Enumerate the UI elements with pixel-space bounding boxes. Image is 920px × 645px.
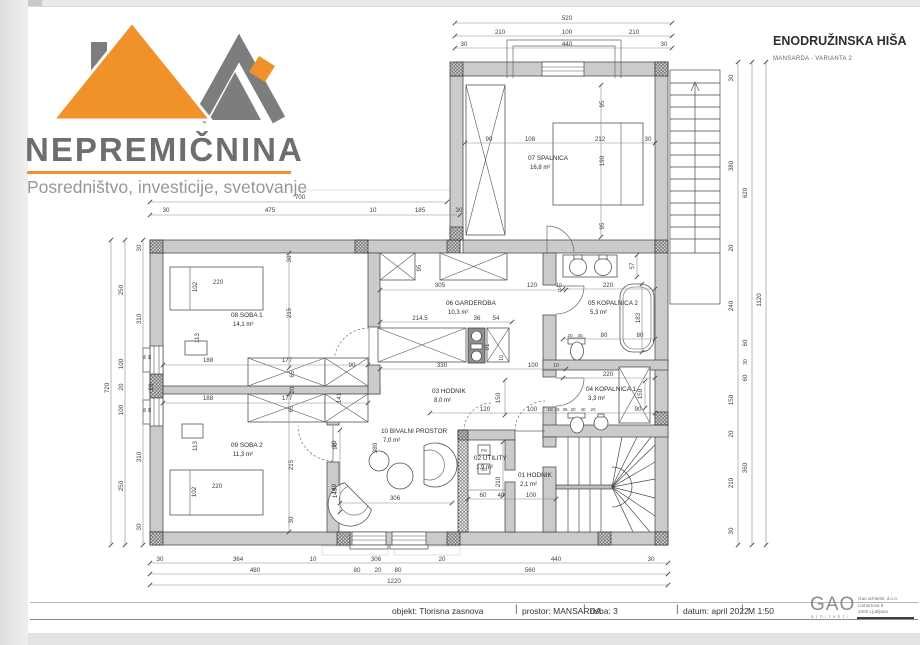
dim-label: 54	[493, 315, 500, 322]
dim-label: 214.5	[412, 315, 428, 322]
dim-label: 380	[728, 160, 735, 171]
dim-label: 360	[742, 462, 749, 473]
room-area: 11,3 m²	[233, 452, 253, 458]
room-name: 10 BIVALNI PROSTOR	[381, 428, 448, 435]
dim-label: 149	[331, 483, 338, 494]
titleblock-risba: risba: 3	[590, 606, 618, 616]
room-name: 02 UTILITY	[474, 455, 507, 462]
dim-label: 10	[499, 355, 505, 361]
dim-label: 30	[648, 556, 655, 563]
dim-label: 30	[645, 136, 652, 143]
dim-label: 30	[661, 41, 668, 48]
dim-label: 10	[557, 287, 562, 293]
dim-label: 150	[495, 392, 502, 403]
architect-logo-sub: arhitekti	[811, 614, 850, 619]
dim-label: 212	[595, 136, 606, 143]
dim-label: 30	[728, 74, 735, 81]
room-name: 07 SPALNICA	[528, 155, 569, 162]
external-stairs	[670, 70, 720, 304]
dim-label: 20	[375, 567, 382, 574]
dim-label: 475	[265, 207, 276, 214]
bathroom2-fixtures	[563, 255, 654, 360]
dim-label: 30	[163, 207, 170, 214]
dim-label: 95	[599, 222, 606, 229]
dim-label: 30	[743, 359, 749, 365]
dim-label: 60	[480, 492, 487, 499]
dim-label: PS	[481, 448, 487, 453]
dim-label: 102	[191, 486, 198, 497]
dim-label: 90	[331, 440, 338, 447]
washbasin-2	[595, 259, 612, 276]
dim-label: 120	[527, 282, 538, 289]
dim-label: 177	[282, 395, 293, 402]
internal-stairs	[556, 437, 655, 532]
dim-label: 305	[435, 282, 446, 289]
dim-label: 100	[526, 492, 537, 499]
utility-partition	[458, 430, 468, 532]
dim-label: 700	[295, 194, 306, 201]
room-area: 3,3 m²	[588, 396, 605, 402]
dim-label: 60	[742, 339, 749, 346]
dim-label: 81	[484, 343, 491, 350]
dim-label: 20	[728, 430, 735, 437]
titleblock-separator: |	[741, 604, 744, 615]
dim-label: 20	[567, 333, 573, 339]
dim-label: 113	[194, 333, 201, 343]
room-area: 10,3 m²	[448, 310, 468, 316]
dim-label: 40	[580, 407, 586, 412]
dim-label: 100	[118, 404, 125, 415]
dim-label: 520	[562, 15, 573, 22]
dim-label: 36	[474, 315, 481, 322]
architect-logo: GAO	[810, 594, 855, 616]
dim-label: 100	[118, 358, 125, 369]
dim-label: 100	[562, 29, 573, 36]
dim-label: 90	[349, 362, 356, 369]
dim-label: 20	[148, 383, 155, 390]
dim-label: 30	[286, 255, 293, 262]
dim-label: 10	[370, 207, 377, 214]
dim-label: 95	[599, 100, 606, 107]
furniture-layer	[170, 85, 654, 535]
washbasin-1	[570, 259, 587, 276]
dim-label: 1120	[756, 293, 763, 307]
dim-label: 185	[415, 207, 426, 214]
architect-address-line: 1000 Ljubljana	[858, 609, 898, 616]
dim-label: 85	[147, 407, 152, 412]
dim-label: 108	[525, 136, 536, 143]
architect-address-line: Gao arhitekti, d.o.o.	[858, 596, 898, 603]
room-name: 06 GARDEROBA	[446, 300, 496, 307]
titleblock-separator: |	[583, 604, 586, 615]
dim-label: 480	[250, 567, 261, 574]
appliance-column	[468, 328, 485, 363]
dim-label: 20	[570, 407, 576, 412]
stair-handrail	[556, 485, 612, 489]
dim-label: 210	[495, 29, 506, 36]
bed-soba2	[170, 470, 263, 515]
armchair-1	[424, 443, 457, 487]
dim-label: 60	[742, 374, 749, 381]
dim-label: 306	[371, 556, 382, 563]
dim-label: 40	[498, 492, 505, 499]
dim-label: 440	[551, 556, 562, 563]
dim-label: 10	[553, 363, 559, 369]
room-name: 09 SOBA 2	[231, 442, 263, 449]
dim-label: 364	[233, 556, 244, 563]
titleblock-separator: |	[515, 604, 518, 615]
dim-label: 215	[286, 307, 293, 318]
titleblock-bottom-rule	[30, 619, 918, 620]
dim-label: 102	[192, 281, 199, 292]
coffee-table-2	[387, 463, 413, 489]
dim-label: 188	[203, 357, 214, 364]
dim-label: 20	[118, 383, 125, 390]
dim-label: 20	[439, 556, 446, 563]
dim-label: 250	[118, 284, 125, 295]
room-name: 04 KOPALNICA 1	[586, 386, 636, 393]
dim-label: 380	[372, 442, 379, 453]
dim-label: 183	[635, 312, 642, 323]
bed-soba1	[170, 267, 263, 310]
washbasin-3	[594, 416, 608, 430]
room-area: 7,0 m²	[383, 438, 400, 444]
room-name: 03 HODNIK	[432, 388, 466, 395]
dim-label: 65	[288, 405, 295, 412]
dim-label: 80	[354, 567, 361, 574]
dim-label: 220	[603, 282, 614, 289]
dim-label: 90	[486, 136, 493, 143]
dim-label: 80	[637, 332, 644, 339]
dim-label: 560	[525, 567, 536, 574]
dim-label: 30	[728, 527, 735, 534]
room-area: 5,3 m²	[590, 310, 607, 316]
dim-label: 35	[562, 407, 568, 412]
dim-label: 250	[118, 480, 125, 491]
dim-label: 150	[637, 388, 644, 399]
toilet-1	[571, 417, 584, 433]
dim-label: 20	[590, 407, 596, 412]
titleblock-scale: M 1:50	[748, 606, 774, 616]
dim-label: 40	[577, 333, 583, 339]
dim-label: 1220	[387, 578, 401, 585]
dim-label: 120	[480, 406, 491, 413]
dim-label: 20	[728, 244, 735, 251]
dim-label: 210	[495, 476, 502, 487]
titleblock-objekt: objekt: Tlorisna zasnova	[392, 606, 484, 616]
dim-label: 220	[212, 483, 223, 490]
room-name: 05 KOPALNICA 2	[588, 300, 638, 307]
dim-label: 150	[728, 394, 735, 405]
architect-address: Gao arhitekti, d.o.o. Linhartova 8 1000 …	[858, 596, 898, 616]
dim-label: 220	[603, 371, 614, 378]
dim-label: 215	[288, 459, 295, 470]
dim-label: 113	[192, 441, 199, 451]
dim-label: 100	[528, 362, 539, 369]
room-area: 2,1 m²	[520, 482, 537, 488]
dim-label: 310	[136, 451, 143, 462]
toilet-2	[571, 342, 584, 360]
room-area: 1,9 m²	[476, 465, 493, 471]
dim-label: 85	[147, 354, 152, 359]
dim-label: 210	[728, 477, 735, 488]
dim-label: 220	[213, 279, 224, 286]
nightstand-soba2	[182, 424, 203, 438]
room-name: 01 HODNIK	[518, 472, 552, 479]
dim-label: 10	[310, 556, 317, 563]
room-area: 8,0 m²	[434, 398, 451, 404]
floor-plan: 5202101002103044030700304751018530901082…	[0, 0, 920, 645]
room-area: 14,1 m²	[233, 322, 253, 328]
dim-label: 141	[336, 392, 343, 403]
dim-label: 177	[282, 357, 293, 364]
dim-label: 30	[461, 41, 468, 48]
dim-label: 190	[599, 155, 606, 166]
dim-label: 15	[554, 407, 560, 412]
dim-label: 310	[136, 313, 143, 324]
dim-label: 10	[547, 407, 553, 412]
titleblock-top-rule	[30, 602, 918, 603]
dim-label: 30	[136, 523, 143, 530]
dim-label: 306	[390, 495, 401, 502]
dim-label: 30	[136, 244, 143, 251]
dim-label: 90	[635, 406, 642, 413]
dim-label: 330	[437, 362, 448, 369]
architect-logo-rule	[857, 617, 914, 619]
dim-label: 30	[456, 207, 463, 214]
dim-label: 95	[416, 264, 423, 271]
dim-label: 80	[395, 567, 402, 574]
dim-label: 20	[289, 386, 296, 393]
room-name: 08 SOBA 1	[231, 312, 263, 319]
dim-label: 240	[728, 300, 735, 311]
dim-label: 210	[629, 29, 640, 36]
dim-label: 30	[157, 556, 164, 563]
dim-label: 620	[742, 187, 749, 198]
dim-label: 720	[104, 382, 111, 393]
dim-label: 57	[629, 262, 636, 269]
dim-label: 440	[562, 41, 573, 48]
titleblock-separator: |	[676, 604, 679, 615]
dim-label: 65	[289, 370, 296, 377]
titleblock-datum: datum: april 2022	[683, 606, 749, 616]
dim-label: 30	[288, 516, 295, 523]
dim-label: 188	[203, 395, 214, 402]
dim-label: 100	[527, 406, 538, 413]
room-area: 16,8 m²	[530, 165, 550, 171]
dim-label: 80	[601, 332, 608, 339]
